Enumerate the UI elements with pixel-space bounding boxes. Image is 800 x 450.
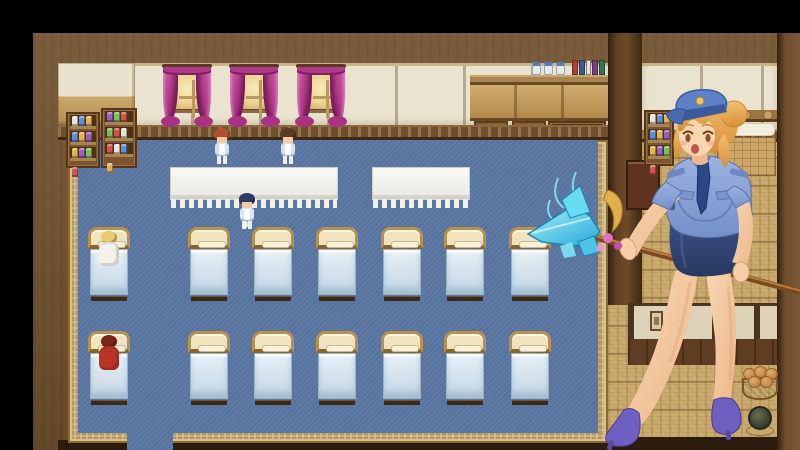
nurse-auburn-sprite[interactable]	[213, 127, 231, 165]
s-legs-part	[283, 156, 293, 164]
path-part	[604, 190, 622, 232]
ellipse-part	[733, 262, 749, 282]
circle-part	[603, 233, 613, 243]
ellipse-part	[707, 141, 715, 146]
crystal-spearhead	[528, 172, 622, 258]
s-legs-part	[217, 156, 227, 164]
path-part	[712, 398, 741, 435]
circle-part	[597, 245, 604, 252]
path-part	[666, 109, 686, 124]
s-apron-part	[244, 209, 250, 220]
letterbox-top	[0, 0, 800, 33]
s-apron-part	[285, 144, 291, 155]
nurse-brunette-sprite[interactable]	[279, 127, 297, 165]
ellipse-part	[691, 144, 699, 154]
ellipse-part	[686, 134, 691, 142]
s-apron-part	[219, 144, 225, 155]
rect-part	[726, 430, 731, 440]
ellipse-part	[679, 141, 687, 146]
high-heels	[606, 398, 741, 450]
letterbox-left	[0, 0, 33, 450]
circle-part	[696, 97, 704, 105]
police-woman-character[interactable]	[520, 50, 800, 450]
game-screen[interactable]	[0, 0, 800, 450]
circle-part	[614, 242, 622, 250]
